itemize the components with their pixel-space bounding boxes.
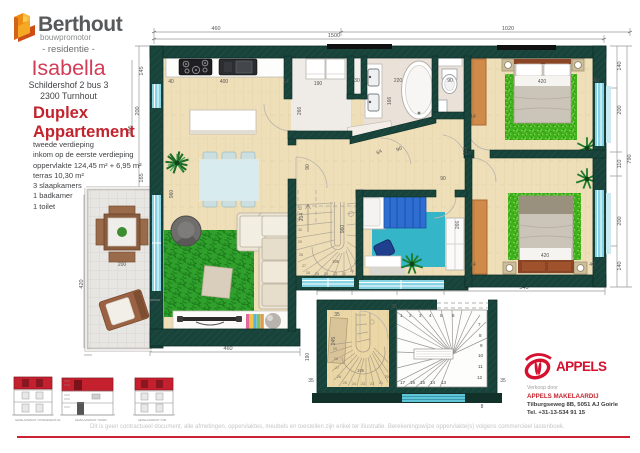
svg-text:90: 90 xyxy=(447,78,453,84)
svg-text:24: 24 xyxy=(352,382,356,386)
svg-text:140: 140 xyxy=(617,61,623,70)
svg-text:166: 166 xyxy=(387,97,393,106)
svg-text:11: 11 xyxy=(478,364,483,369)
svg-text:12: 12 xyxy=(477,375,483,380)
svg-text:24: 24 xyxy=(324,272,328,276)
svg-text:28: 28 xyxy=(299,253,303,257)
svg-text:6: 6 xyxy=(452,313,455,318)
svg-text:27: 27 xyxy=(335,366,339,370)
svg-text:4: 4 xyxy=(429,313,432,318)
svg-text:1020: 1020 xyxy=(502,26,514,32)
svg-text:200: 200 xyxy=(617,216,623,225)
svg-text:420: 420 xyxy=(541,253,550,259)
svg-text:30: 30 xyxy=(298,228,302,232)
svg-text:7: 7 xyxy=(478,322,481,327)
svg-text:27: 27 xyxy=(302,264,306,268)
svg-text:14: 14 xyxy=(430,380,436,385)
svg-text:35: 35 xyxy=(334,312,340,318)
svg-text:16: 16 xyxy=(410,380,416,385)
svg-text:245: 245 xyxy=(331,337,337,346)
svg-text:29: 29 xyxy=(333,347,337,351)
svg-text:25: 25 xyxy=(343,381,347,385)
svg-text:22: 22 xyxy=(370,382,374,386)
svg-text:35: 35 xyxy=(391,304,397,310)
svg-text:90: 90 xyxy=(440,176,446,182)
svg-text:14: 14 xyxy=(283,79,289,85)
svg-text:220: 220 xyxy=(394,78,403,84)
svg-text:195: 195 xyxy=(332,259,340,264)
svg-text:GEVELAANZICHT THORN: GEVELAANZICHT THORN xyxy=(75,418,107,422)
svg-text:23: 23 xyxy=(333,272,337,276)
svg-text:190: 190 xyxy=(314,81,323,87)
svg-text:195: 195 xyxy=(357,368,365,373)
svg-text:40: 40 xyxy=(168,79,174,85)
svg-text:190: 190 xyxy=(305,353,311,362)
svg-text:266: 266 xyxy=(455,221,461,230)
svg-text:40: 40 xyxy=(589,262,595,268)
svg-text:22: 22 xyxy=(342,272,346,276)
svg-text:3: 3 xyxy=(419,313,422,318)
svg-text:25: 25 xyxy=(315,272,319,276)
svg-text:GEVELAANZICHT VOORGEVELPLUS: GEVELAANZICHT VOORGEVELPLUS xyxy=(15,418,61,422)
svg-text:26: 26 xyxy=(337,375,341,379)
svg-text:35: 35 xyxy=(308,378,314,384)
svg-text:214: 214 xyxy=(299,213,305,222)
svg-text:32: 32 xyxy=(298,207,302,211)
svg-text:23: 23 xyxy=(361,382,365,386)
svg-text:21: 21 xyxy=(379,381,383,385)
svg-text:21: 21 xyxy=(350,269,354,273)
svg-text:1: 1 xyxy=(400,313,403,318)
svg-text:420: 420 xyxy=(79,279,85,288)
svg-text:28: 28 xyxy=(334,357,338,361)
svg-text:15: 15 xyxy=(420,380,426,385)
svg-text:2: 2 xyxy=(409,313,412,318)
svg-text:20: 20 xyxy=(385,375,389,379)
svg-text:5: 5 xyxy=(440,313,443,318)
svg-text:140: 140 xyxy=(617,261,623,270)
svg-text:960: 960 xyxy=(340,225,346,234)
svg-text:960: 960 xyxy=(169,190,175,199)
svg-text:790: 790 xyxy=(627,154,633,163)
svg-text:214: 214 xyxy=(463,147,469,156)
svg-text:29: 29 xyxy=(298,240,302,244)
svg-text:9: 9 xyxy=(480,343,483,348)
svg-text:145: 145 xyxy=(139,66,145,75)
svg-text:460: 460 xyxy=(223,346,232,352)
svg-text:1500: 1500 xyxy=(328,33,340,39)
svg-text:200: 200 xyxy=(118,262,127,268)
svg-text:110: 110 xyxy=(617,160,623,169)
svg-text:30: 30 xyxy=(354,78,360,84)
svg-text:35: 35 xyxy=(500,378,506,384)
svg-text:13: 13 xyxy=(441,380,447,385)
svg-text:10: 10 xyxy=(478,353,484,358)
svg-text:266: 266 xyxy=(297,107,303,116)
svg-text:8: 8 xyxy=(479,333,482,338)
svg-text:14: 14 xyxy=(470,262,476,268)
svg-text:8: 8 xyxy=(481,404,484,410)
svg-text:90: 90 xyxy=(305,164,311,170)
svg-text:200: 200 xyxy=(135,106,141,115)
svg-text:200: 200 xyxy=(617,105,623,114)
svg-text:GEVELAANZICHT TUIN: GEVELAANZICHT TUIN xyxy=(138,418,166,422)
svg-text:420: 420 xyxy=(538,79,547,85)
svg-text:14: 14 xyxy=(470,114,476,120)
svg-text:26: 26 xyxy=(306,271,310,275)
svg-text:400: 400 xyxy=(220,79,229,85)
svg-text:460: 460 xyxy=(211,26,220,32)
svg-text:40: 40 xyxy=(593,78,599,84)
svg-text:17: 17 xyxy=(400,380,406,385)
